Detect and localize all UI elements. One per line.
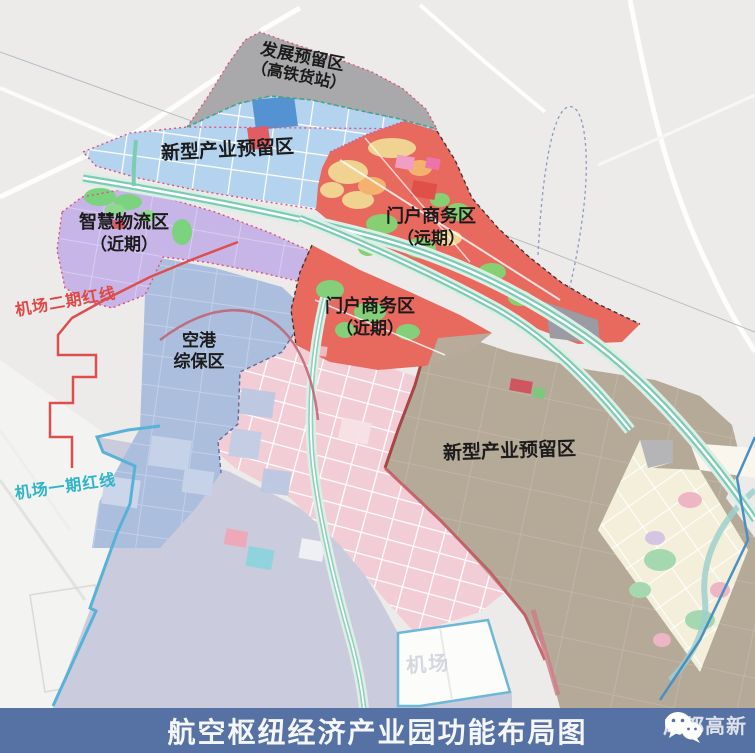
wechat-logo-icon xyxy=(663,710,703,744)
banner-title: 航空枢纽经济产业园功能布局图 xyxy=(0,711,755,751)
map-canvas xyxy=(0,0,755,753)
brand-badge: 成都高新 xyxy=(663,710,747,739)
banner: 航空枢纽经济产业园功能布局图 成都高新 xyxy=(0,708,755,753)
layout-map: 发展预留区 （高铁货站） 新型产业预留区 智慧物流区 （近期） 门户商务区 （远… xyxy=(0,0,755,753)
